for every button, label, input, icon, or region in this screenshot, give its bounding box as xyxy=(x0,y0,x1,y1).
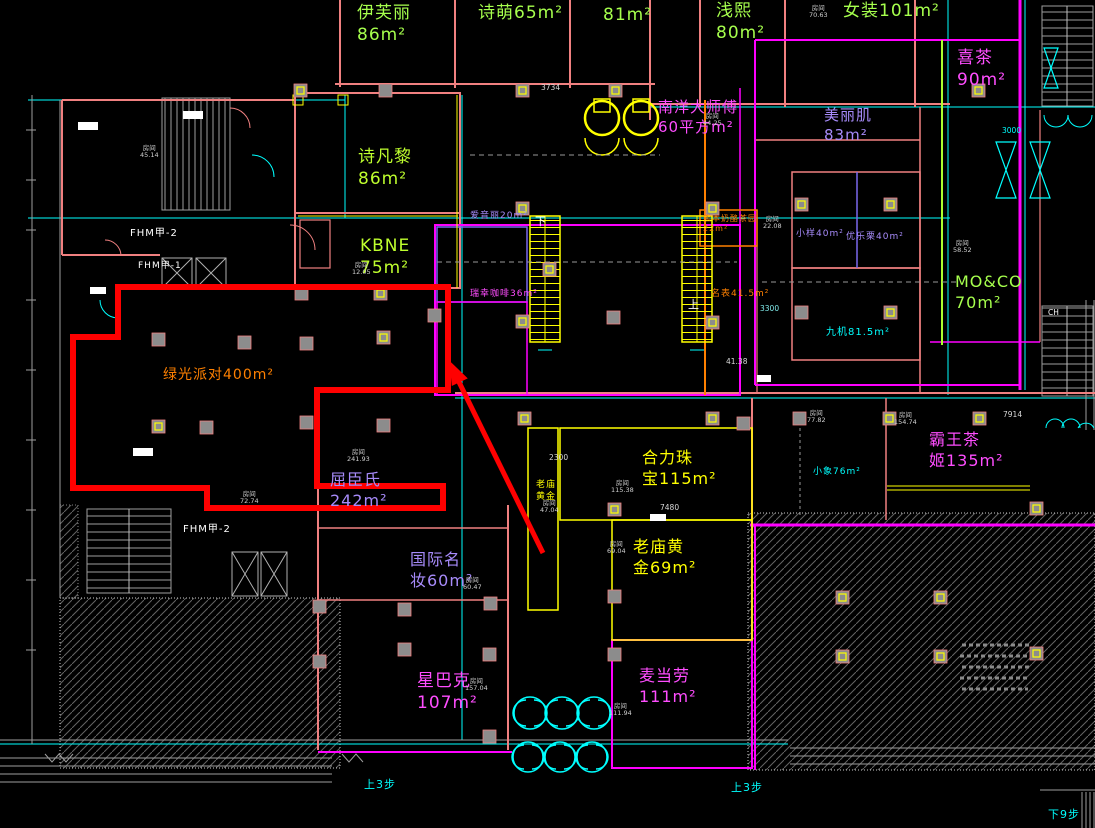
room-area-tag: 房间 111.94 xyxy=(609,703,632,718)
fire-door-label-2: FHM甲-1 xyxy=(138,261,182,273)
store-label-qianxi: 浅熙 80m² xyxy=(716,0,765,44)
dimension-text: 7914 xyxy=(1003,410,1022,419)
room-area-tag: 房间 241.93 xyxy=(347,449,370,464)
dimension-text: CH xyxy=(1048,308,1059,317)
room-area-tag: 房间 115.38 xyxy=(611,480,634,495)
cad-floor-plan-canvas[interactable]: 伊芙丽 86m²诗萌65m²81m²浅熙 80m²女装101m²喜茶 90m²诗… xyxy=(0,0,1095,828)
store-label-shimeng: 诗萌65m² xyxy=(478,2,563,24)
text-labels-layer: 伊芙丽 86m²诗萌65m²81m²浅熙 80m²女装101m²喜茶 90m²诗… xyxy=(0,0,1095,828)
store-label-yifuli: 伊芙丽 86m² xyxy=(357,2,411,46)
store-label-81: 81m² xyxy=(603,4,652,26)
dimension-text: 7480 xyxy=(660,503,679,512)
store-label-nvzhuang: 女装101m² xyxy=(843,0,940,22)
escalator-up-label: 上 xyxy=(688,298,700,312)
store-label-aiyinli: 爱音丽20m² xyxy=(470,211,528,223)
store-label-ruixingkafei: 瑞幸咖啡36m² xyxy=(470,289,538,301)
store-label-bawangchaji: 霸王茶 姬135m² xyxy=(929,430,1004,472)
store-label-mingbiao: 名表41.5m² xyxy=(711,289,769,301)
fire-door-label-1: FHM甲-2 xyxy=(130,227,178,240)
room-area-tag: 房间 44.25 xyxy=(703,113,722,128)
store-label-xicha: 喜茶 90m² xyxy=(957,47,1006,91)
store-label-youleli: 优乐栗40m² xyxy=(846,232,904,244)
escalator-down-label: 下 xyxy=(535,215,547,229)
room-area-tag: 房间 22.08 xyxy=(763,216,782,231)
store-label-meiliji: 美丽肌 83m² xyxy=(824,106,872,145)
store-label-shifanli: 诗凡黎 86m² xyxy=(358,146,412,190)
room-area-tag: 房间 58.52 xyxy=(953,240,972,255)
store-label-quchenshi: 屈臣氏 242m² xyxy=(330,470,388,512)
store-label-xiongben: 熊本奶酪茶园 22m² xyxy=(703,214,757,235)
room-area-tag: 房间 69.04 xyxy=(607,541,626,556)
store-label-lvguangpaidui: 绿光派对400m² xyxy=(163,366,274,384)
room-area-tag: 房间 72.74 xyxy=(240,491,259,506)
dimension-text: 41.38 xyxy=(726,357,747,366)
store-label-maidanglao: 麦当劳 111m² xyxy=(639,666,697,708)
store-label-xiaoxiang: 小象76m² xyxy=(813,467,861,479)
dimension-text: 3734 xyxy=(541,83,560,92)
step-label-2: 上3步 xyxy=(731,781,763,795)
store-label-xiaoyang: 小样40m² xyxy=(796,229,844,241)
room-area-tag: 房间 157.04 xyxy=(465,678,488,693)
room-area-tag: 房间 45.14 xyxy=(140,145,159,160)
step-label-1: 上3步 xyxy=(364,778,396,792)
store-label-moco: MO&CO 70m² xyxy=(955,272,1023,314)
room-area-tag: 房间 154.74 xyxy=(894,412,917,427)
store-label-helizhubao: 合力珠 宝115m² xyxy=(642,448,717,490)
store-label-nanyangdashifu: 南洋大师傅 60平方m² xyxy=(658,98,738,137)
dimension-text: 3000 xyxy=(1002,126,1021,135)
room-area-tag: 房间 12.05 xyxy=(352,262,371,277)
store-label-jiuji: 九机81.5m² xyxy=(826,326,890,339)
step-label-3: 下9步 xyxy=(1048,808,1080,822)
store-label-laomiaohuangjin: 老庙黄 金69m² xyxy=(633,537,696,579)
dimension-text: 3300 xyxy=(760,304,779,313)
room-area-tag: 房间 70.63 xyxy=(809,5,828,20)
room-area-tag: 房间 60.47 xyxy=(463,577,482,592)
room-area-tag: 房间 77.82 xyxy=(807,410,826,425)
dimension-text: 2300 xyxy=(549,453,568,462)
fire-door-label-3: FHM甲-2 xyxy=(183,523,231,536)
room-area-tag: 房间 47.04 xyxy=(540,500,559,515)
